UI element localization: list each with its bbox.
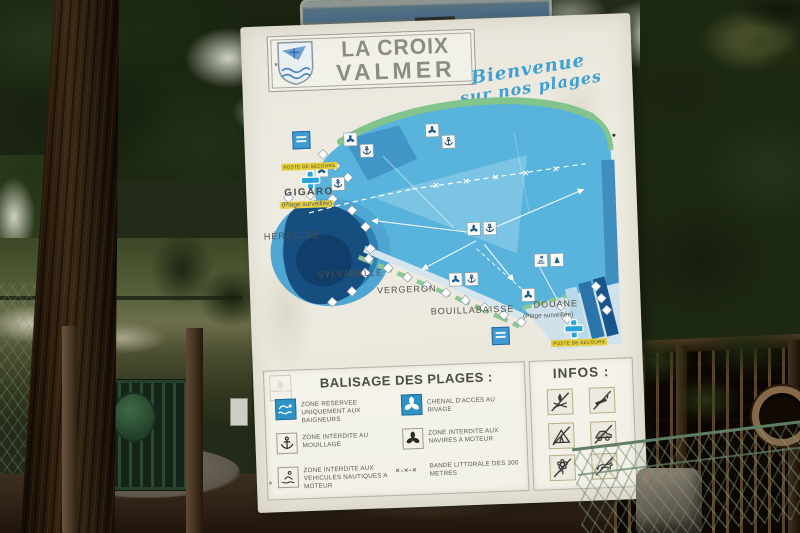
propeller-dark-icon (402, 428, 424, 450)
legend-stamp (269, 375, 292, 402)
legend-item-label: BANDE LITTORALE DES 300 METRES (429, 459, 520, 479)
anchor-icon (276, 432, 298, 454)
no-flower-picking-icon (549, 454, 576, 481)
no-camping-icon (548, 422, 575, 449)
wooden-post-mid (186, 328, 203, 533)
no-smoking-icon (589, 387, 616, 414)
beach-label-gigaro: GIGARO (284, 186, 334, 199)
first-aid-cross-icon (565, 320, 583, 338)
infos-title: INFOS : (530, 363, 632, 382)
beach-information-sign: LA CROIX VALMER Bienvenue sur nos plages (240, 13, 648, 513)
legend-item-label: ZONE INTERDITE AUX VEHICULES NAUTIQUES A… (303, 464, 398, 492)
legend-item-label: CHENAL D'ACCES AU RIVAGE (427, 395, 518, 415)
title-line1: LA CROIX (323, 33, 468, 61)
legend-panel: BALISAGE DES PLAGES : ZONE RESERVEE UNIQ… (263, 361, 530, 501)
shoreline-band-marker: ×-×-× (395, 467, 417, 475)
gate-round-sign (112, 392, 156, 442)
beach-label-heraclee: HÉRACLÉE (264, 230, 321, 242)
photo-of-beach-sign: LA CROIX VALMER Bienvenue sur nos plages (0, 0, 800, 533)
branch-top-right (700, 0, 800, 78)
legend-item-label: ZONE INTERDITE AU MOUILLAGE (302, 431, 397, 451)
legend-item-label: ZONE RESERVEE UNIQUEMENT AUX BAIGNEURS (301, 398, 396, 426)
town-crest (276, 40, 316, 87)
blue-flag-icon (292, 131, 311, 150)
legend-item-label: ZONE INTERDITE AUX NAVIRES A MOTEUR (428, 426, 519, 446)
small-white-sign (230, 398, 248, 426)
wooden-post-left (62, 326, 77, 533)
propeller-icon (401, 394, 423, 416)
legend-title: BALISAGE DES PLAGES : (294, 368, 518, 391)
swimmer-icon (275, 399, 297, 421)
beach-label-douane: DOUANE (533, 298, 578, 310)
jetski-icon (277, 466, 299, 488)
blue-flag-icon (491, 327, 510, 346)
no-campfire-icon (547, 388, 574, 415)
